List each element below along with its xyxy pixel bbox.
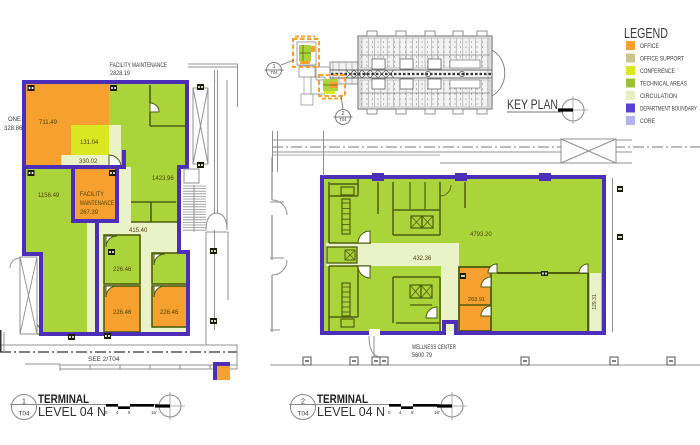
svg-text:LEGEND: LEGEND (624, 25, 668, 42)
svg-text:330.02: 330.02 (79, 159, 98, 165)
svg-text:KEY PLAN: KEY PLAN (507, 97, 558, 112)
svg-text:FACILITY MAINTENANCE: FACILITY MAINTENANCE (110, 63, 167, 69)
svg-text:T04: T04 (270, 70, 278, 75)
svg-text:415.40: 415.40 (129, 228, 148, 234)
svg-text:ONE: ONE (8, 117, 21, 123)
svg-text:711.49: 711.49 (39, 120, 58, 126)
svg-text:1156.49: 1156.49 (38, 193, 60, 199)
svg-text:16': 16' (434, 410, 440, 415)
svg-text:FACILITY: FACILITY (80, 192, 104, 198)
svg-text:226.46: 226.46 (113, 267, 132, 273)
svg-text:226.46: 226.46 (113, 310, 132, 316)
svg-text:1423.96: 1423.96 (152, 176, 174, 182)
svg-text:WELLNESS CENTER: WELLNESS CENTER (412, 345, 456, 351)
svg-text:432.36: 432.36 (413, 256, 432, 262)
svg-text:267.39: 267.39 (80, 210, 99, 216)
svg-text:CIRCULATION: CIRCULATION (640, 93, 677, 100)
svg-text:T04: T04 (297, 411, 309, 418)
svg-text:226.46: 226.46 (160, 310, 179, 316)
svg-text:MAINTENANCE: MAINTENANCE (80, 201, 114, 207)
svg-text:CONFERENCE: CONFERENCE (640, 68, 675, 75)
svg-text:129.31: 129.31 (592, 294, 598, 310)
svg-text:4793.20: 4793.20 (470, 232, 492, 238)
svg-text:5600.79: 5600.79 (412, 353, 433, 359)
svg-text:263.91: 263.91 (468, 297, 485, 303)
svg-text:CORE: CORE (640, 118, 655, 125)
svg-text:16': 16' (151, 410, 157, 415)
svg-text:OFFICE SUPPORT: OFFICE SUPPORT (640, 56, 684, 63)
svg-text:328.86: 328.86 (4, 126, 23, 132)
svg-text:TECHNICAL AREAS: TECHNICAL AREAS (640, 81, 687, 88)
svg-text:SEE 2/T04: SEE 2/T04 (88, 356, 120, 363)
svg-text:131.04: 131.04 (80, 140, 99, 146)
svg-text:LEVEL 04 N: LEVEL 04 N (38, 404, 106, 419)
svg-text:OFFICE: OFFICE (640, 43, 659, 50)
svg-text:LEVEL 04 N: LEVEL 04 N (317, 404, 385, 419)
svg-text:T04: T04 (18, 411, 30, 418)
svg-text:2828.19: 2828.19 (110, 71, 131, 77)
svg-text:T04: T04 (339, 117, 347, 122)
svg-text:DEPARTMENT BOUNDARY: DEPARTMENT BOUNDARY (640, 106, 697, 113)
